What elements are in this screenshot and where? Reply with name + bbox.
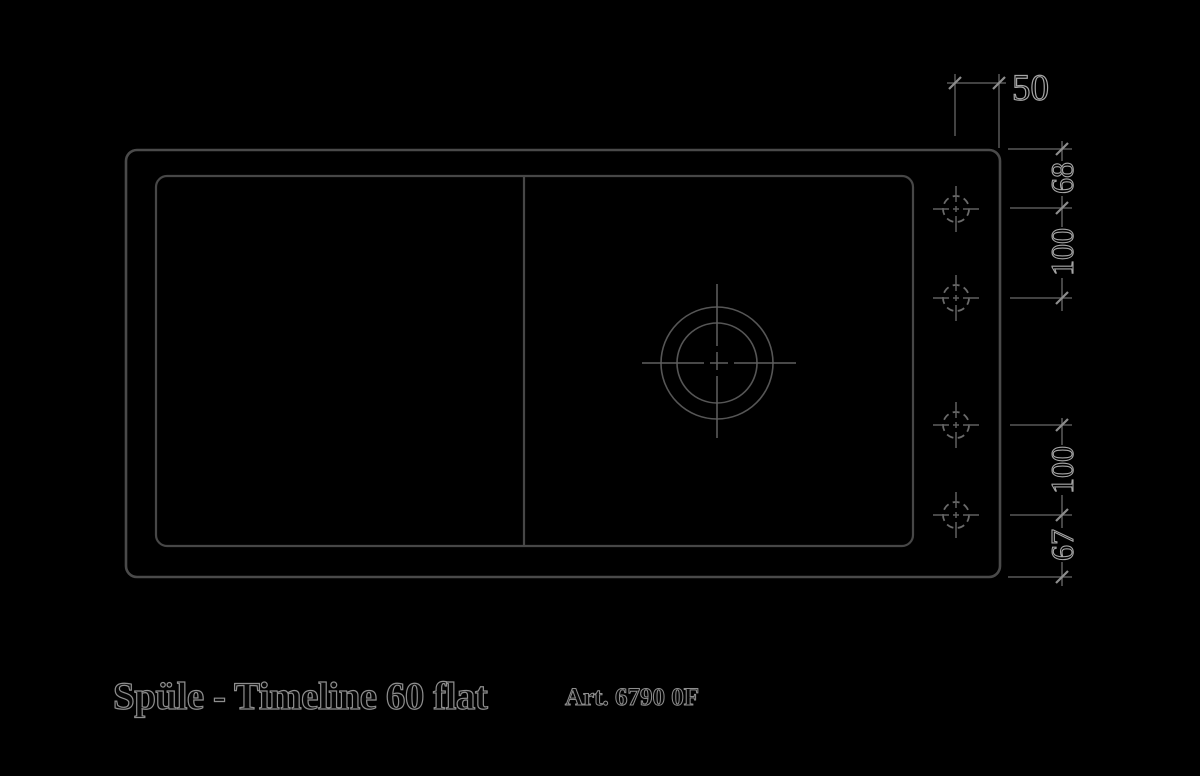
technical-drawing-page: 50 68 100 — [0, 0, 1200, 776]
tap-hole-4 — [933, 492, 979, 538]
dimension-top-50: 50 — [947, 68, 1049, 148]
sink-outer-outline — [126, 150, 1000, 577]
basin-inner-outline — [156, 176, 913, 546]
dimension-label-100-top: 100 — [1044, 228, 1080, 276]
dimension-label-50: 50 — [1012, 68, 1049, 109]
tap-hole-1 — [933, 186, 979, 232]
dimension-label-67: 67 — [1044, 529, 1080, 561]
tap-hole-3 — [933, 402, 979, 448]
article-number: Art. 6790 0F — [565, 684, 699, 712]
sink-technical-drawing: 50 68 100 — [0, 0, 1200, 776]
dimension-label-68: 68 — [1044, 162, 1080, 194]
product-title: Spüle - Timeline 60 flat — [113, 674, 487, 719]
dimension-right-chain: 68 100 100 67 — [1008, 141, 1080, 586]
tap-hole-2 — [933, 275, 979, 321]
drain-mark — [642, 284, 797, 441]
dimension-label-100-bottom: 100 — [1044, 446, 1080, 494]
